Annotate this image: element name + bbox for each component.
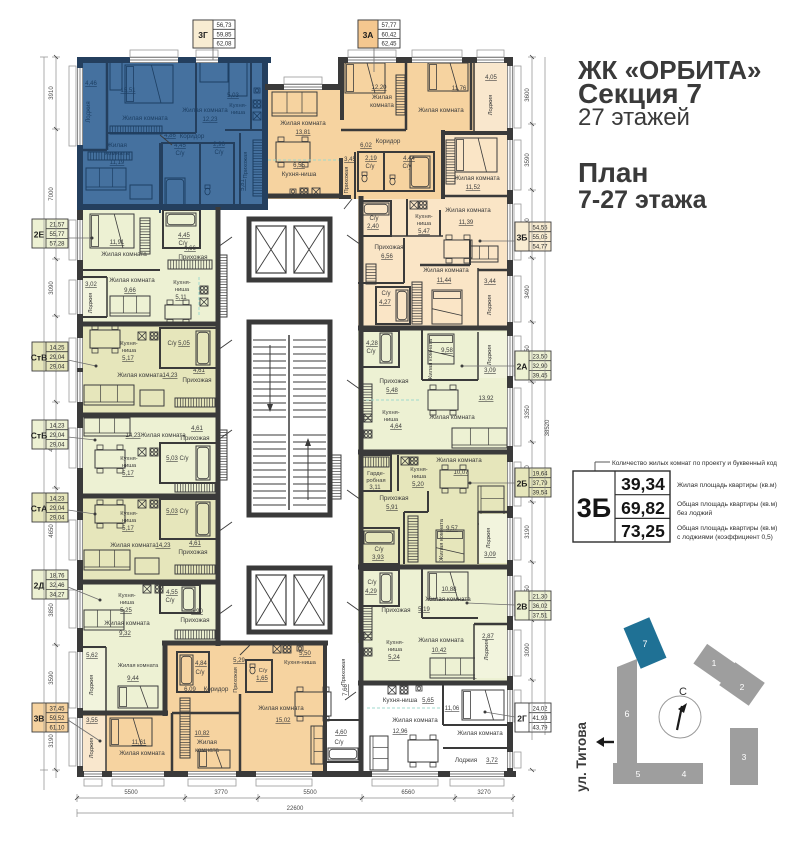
svg-text:робная: робная xyxy=(366,478,385,484)
svg-text:3,11: 3,11 xyxy=(369,485,381,491)
svg-text:Лоджия: Лоджия xyxy=(484,640,490,661)
svg-text:11,61: 11,61 xyxy=(132,740,147,746)
svg-text:4,66: 4,66 xyxy=(184,246,196,252)
svg-text:Жилая площадь квартиры (кв.м): Жилая площадь квартиры (кв.м) xyxy=(677,482,777,489)
svg-text:3Б: 3Б xyxy=(517,233,528,243)
svg-text:5,19: 5,19 xyxy=(418,607,430,613)
svg-text:Прихожая: Прихожая xyxy=(374,244,403,251)
svg-text:2Б: 2Б xyxy=(517,479,528,489)
svg-text:Жилая комната: Жилая комната xyxy=(182,107,228,114)
svg-text:2В: 2В xyxy=(517,602,528,612)
svg-text:Лоджия: Лоджия xyxy=(487,295,493,316)
svg-text:12,20: 12,20 xyxy=(371,85,387,91)
svg-text:11,44: 11,44 xyxy=(437,278,452,284)
svg-text:5,81: 5,81 xyxy=(240,179,246,191)
svg-text:3,72: 3,72 xyxy=(486,758,498,764)
svg-text:2,96: 2,96 xyxy=(213,142,225,148)
svg-text:3Б: 3Б xyxy=(577,493,611,523)
svg-text:5,47: 5,47 xyxy=(418,229,430,235)
svg-text:4,45: 4,45 xyxy=(174,143,186,149)
svg-text:14,23: 14,23 xyxy=(49,424,65,430)
svg-text:6560: 6560 xyxy=(401,790,415,796)
svg-text:С/у: С/у xyxy=(367,349,376,355)
svg-text:9,44: 9,44 xyxy=(127,676,139,682)
svg-text:37,79: 37,79 xyxy=(532,481,548,487)
svg-text:С: С xyxy=(679,686,687,698)
svg-text:5,50: 5,50 xyxy=(299,651,311,657)
svg-text:3,93: 3,93 xyxy=(372,555,384,561)
svg-text:Жилая комната: Жилая комната xyxy=(454,175,500,182)
svg-text:С/у: С/у xyxy=(215,150,224,156)
svg-text:3,44: 3,44 xyxy=(484,279,496,285)
svg-text:3: 3 xyxy=(742,752,747,762)
svg-text:Прихожая: Прихожая xyxy=(243,152,249,179)
svg-text:Лоджия: Лоджия xyxy=(455,757,477,764)
svg-text:3190: 3190 xyxy=(49,734,55,748)
svg-text:Жилая: Жилая xyxy=(372,94,392,101)
svg-text:29,04: 29,04 xyxy=(49,355,65,361)
svg-text:11,19: 11,19 xyxy=(110,160,125,166)
svg-text:59,85: 59,85 xyxy=(216,32,232,38)
svg-text:Жилая: Жилая xyxy=(197,739,217,746)
svg-text:15,51: 15,51 xyxy=(120,88,136,94)
svg-text:С/у: С/у xyxy=(382,291,391,297)
svg-text:4,46: 4,46 xyxy=(85,81,97,87)
svg-text:32,90: 32,90 xyxy=(532,364,548,370)
svg-text:Кухня-: Кухня- xyxy=(229,103,247,109)
svg-text:4,61: 4,61 xyxy=(193,368,205,374)
svg-text:4,60: 4,60 xyxy=(335,730,347,736)
svg-text:2,40: 2,40 xyxy=(367,224,379,230)
svg-text:3,90: 3,90 xyxy=(191,609,203,615)
svg-text:10,07: 10,07 xyxy=(453,470,469,476)
svg-text:5: 5 xyxy=(636,769,641,779)
svg-text:Кухня-: Кухня- xyxy=(120,511,138,517)
svg-text:37,45: 37,45 xyxy=(49,707,65,713)
svg-text:Жилая комната: Жилая комната xyxy=(445,207,491,214)
svg-text:3190: 3190 xyxy=(525,525,531,539)
svg-text:57,77: 57,77 xyxy=(381,23,397,29)
svg-text:10,88: 10,88 xyxy=(441,587,457,593)
svg-text:7000: 7000 xyxy=(49,187,55,201)
svg-text:4: 4 xyxy=(682,769,687,779)
svg-text:24,02: 24,02 xyxy=(532,707,548,713)
svg-text:3910: 3910 xyxy=(49,86,55,100)
svg-text:Лоджия: Лоджия xyxy=(88,293,94,314)
svg-text:Прихожая: Прихожая xyxy=(178,549,207,556)
svg-text:Жилая комната: Жилая комната xyxy=(423,267,469,274)
svg-text:11,91: 11,91 xyxy=(110,240,125,246)
svg-text:3590: 3590 xyxy=(49,671,55,685)
svg-text:29,04: 29,04 xyxy=(49,365,65,371)
svg-text:6,56: 6,56 xyxy=(381,254,393,260)
svg-text:4,27: 4,27 xyxy=(379,300,391,306)
svg-text:39,34: 39,34 xyxy=(621,474,665,494)
svg-text:5,17: 5,17 xyxy=(122,526,134,532)
svg-text:29,04: 29,04 xyxy=(49,443,65,449)
svg-text:62,45: 62,45 xyxy=(381,42,397,48)
svg-text:Гарде-: Гарде- xyxy=(367,471,385,477)
svg-text:Жилая комната: Жилая комната xyxy=(122,115,168,122)
svg-text:29,04: 29,04 xyxy=(49,433,65,439)
svg-text:Коридор: Коридор xyxy=(204,686,229,693)
svg-text:54,55: 54,55 xyxy=(532,226,548,232)
svg-text:ниша: ниша xyxy=(384,417,399,423)
svg-text:Жилая комната: Жилая комната xyxy=(140,432,186,439)
svg-text:без лоджий: без лоджий xyxy=(677,509,712,517)
svg-text:3,02: 3,02 xyxy=(85,282,97,288)
svg-text:5500: 5500 xyxy=(124,790,138,796)
svg-text:2,19: 2,19 xyxy=(365,156,377,162)
svg-text:Жилая комната: Жилая комната xyxy=(117,372,163,379)
svg-text:С/у: С/у xyxy=(180,509,189,515)
svg-text:5,48: 5,48 xyxy=(386,388,398,394)
svg-text:Жилая комната: Жилая комната xyxy=(109,277,155,284)
svg-text:с лоджиями (коэффициент 0,5): с лоджиями (коэффициент 0,5) xyxy=(677,534,773,541)
svg-text:3490: 3490 xyxy=(525,285,531,299)
svg-text:61,10: 61,10 xyxy=(49,726,65,732)
svg-text:ниша: ниша xyxy=(122,348,137,354)
svg-text:55,77: 55,77 xyxy=(49,232,65,238)
svg-text:Кухня-ниша: Кухня-ниша xyxy=(284,660,317,666)
svg-text:Жилая комната: Жилая комната xyxy=(110,542,156,549)
svg-text:Прихожая: Прихожая xyxy=(341,659,347,686)
svg-text:2Г: 2Г xyxy=(517,714,527,724)
svg-text:Общая площадь квартиры (кв.м): Общая площадь квартиры (кв.м) xyxy=(677,524,777,532)
svg-text:Прихожая: Прихожая xyxy=(233,667,239,693)
svg-text:10,42: 10,42 xyxy=(431,648,447,654)
svg-text:4,05: 4,05 xyxy=(485,75,497,81)
svg-text:С/у: С/у xyxy=(370,216,379,222)
svg-text:4,61: 4,61 xyxy=(189,541,201,547)
svg-text:С/у: С/у xyxy=(375,547,384,553)
svg-text:3090: 3090 xyxy=(525,643,531,657)
svg-text:21,30: 21,30 xyxy=(532,595,548,601)
svg-text:36,02: 36,02 xyxy=(532,604,548,610)
svg-text:Жилая комната: Жилая комната xyxy=(280,120,326,127)
svg-text:3,45: 3,45 xyxy=(344,157,356,163)
svg-text:11,06: 11,06 xyxy=(445,706,460,712)
svg-text:Лоджия: Лоджия xyxy=(488,95,494,116)
svg-text:Кухня-: Кухня- xyxy=(415,214,433,220)
svg-text:4,28: 4,28 xyxy=(366,341,378,347)
svg-text:60,42: 60,42 xyxy=(381,32,397,38)
svg-text:Лоджия: Лоджия xyxy=(487,345,493,366)
svg-text:2: 2 xyxy=(740,682,745,692)
svg-text:5,20: 5,20 xyxy=(412,482,424,488)
svg-text:5,03: 5,03 xyxy=(166,509,178,515)
svg-text:19,64: 19,64 xyxy=(532,472,548,478)
svg-text:Кухня-: Кухня- xyxy=(410,467,428,473)
svg-text:С/у: С/у xyxy=(166,598,175,604)
svg-text:3350: 3350 xyxy=(525,405,531,419)
svg-text:4,61: 4,61 xyxy=(191,426,203,432)
svg-text:15,02: 15,02 xyxy=(275,718,291,724)
svg-text:5,24: 5,24 xyxy=(388,655,400,661)
svg-text:9,58: 9,58 xyxy=(441,348,453,354)
svg-text:Лоджия: Лоджия xyxy=(89,675,95,696)
svg-text:ниша: ниша xyxy=(231,110,246,116)
svg-text:3090: 3090 xyxy=(49,281,55,295)
svg-text:39,45: 39,45 xyxy=(532,374,548,380)
svg-text:Жилая комната: Жилая комната xyxy=(428,338,434,381)
svg-text:2А: 2А xyxy=(517,362,528,372)
svg-text:План: План xyxy=(578,157,648,188)
svg-text:9,32: 9,32 xyxy=(119,631,131,637)
svg-text:Прихожая: Прихожая xyxy=(381,607,410,614)
svg-text:3850: 3850 xyxy=(49,603,55,617)
svg-text:комната: комната xyxy=(195,747,219,754)
svg-text:6,02: 6,02 xyxy=(360,143,372,149)
svg-text:Жилая комната: Жилая комната xyxy=(392,717,438,724)
svg-text:С/у: С/у xyxy=(259,668,268,674)
svg-text:4,29: 4,29 xyxy=(365,589,377,595)
svg-text:5,05: 5,05 xyxy=(178,341,190,347)
svg-text:СтВ: СтВ xyxy=(31,353,47,363)
svg-text:4,86: 4,86 xyxy=(164,133,176,139)
svg-text:Лоджия: Лоджия xyxy=(89,738,95,759)
svg-text:СтА: СтА xyxy=(31,504,47,514)
svg-text:С/у: С/у xyxy=(366,164,375,170)
svg-text:Жилая комната: Жилая комната xyxy=(104,620,150,627)
svg-text:Жилая комната: Жилая комната xyxy=(457,730,503,737)
svg-text:ниша: ниша xyxy=(175,287,190,293)
svg-text:55,05: 55,05 xyxy=(532,235,548,241)
svg-text:Коридор: Коридор xyxy=(180,133,205,140)
svg-text:ул. Титова: ул. Титова xyxy=(574,722,589,792)
svg-text:69,82: 69,82 xyxy=(621,498,665,518)
svg-text:3В: 3В xyxy=(34,714,45,724)
svg-text:комната: комната xyxy=(370,102,394,109)
svg-text:62,08: 62,08 xyxy=(216,42,232,48)
svg-text:С/у: С/у xyxy=(196,670,205,676)
svg-text:ниша: ниша xyxy=(417,221,432,227)
svg-text:С/у: С/у xyxy=(335,740,344,746)
svg-text:5,65: 5,65 xyxy=(422,698,434,704)
svg-text:10,82: 10,82 xyxy=(194,731,210,737)
svg-text:Общая площадь квартиры (кв.м): Общая площадь квартиры (кв.м) xyxy=(677,500,777,508)
svg-text:Кухня-: Кухня- xyxy=(120,456,138,462)
svg-text:3600: 3600 xyxy=(525,88,531,102)
svg-text:9,66: 9,66 xyxy=(124,288,136,294)
svg-text:4,64: 4,64 xyxy=(390,424,402,430)
svg-text:Прихожая: Прихожая xyxy=(180,435,209,442)
svg-text:5,03: 5,03 xyxy=(166,456,178,462)
svg-text:12,23: 12,23 xyxy=(202,117,218,123)
svg-text:27 этажей: 27 этажей xyxy=(578,104,690,131)
svg-text:Кухня-ниша: Кухня-ниша xyxy=(282,171,317,178)
svg-text:Жилая: Жилая xyxy=(107,142,127,149)
svg-text:4,84: 4,84 xyxy=(195,661,207,667)
svg-text:2Д: 2Д xyxy=(34,581,45,591)
svg-text:Кухня-: Кухня- xyxy=(382,410,400,416)
svg-text:6,55: 6,55 xyxy=(293,163,305,169)
svg-text:Жилая комната: Жилая комната xyxy=(418,107,464,114)
svg-text:14,25: 14,25 xyxy=(49,346,65,352)
svg-text:7: 7 xyxy=(642,639,647,649)
svg-text:комната: комната xyxy=(105,150,129,157)
svg-text:3270: 3270 xyxy=(477,790,491,796)
svg-text:ниша: ниша xyxy=(388,647,403,653)
svg-text:59,52: 59,52 xyxy=(49,716,65,722)
svg-text:7,66: 7,66 xyxy=(343,684,349,696)
svg-text:Прихожая: Прихожая xyxy=(182,377,211,384)
svg-text:Кухня-: Кухня- xyxy=(120,341,138,347)
svg-text:Жилая комната: Жилая комната xyxy=(425,596,471,603)
svg-text:Жилая комната: Жилая комната xyxy=(258,705,304,712)
svg-text:13,81: 13,81 xyxy=(295,130,311,136)
svg-text:Жилая комната: Жилая комната xyxy=(436,457,482,464)
svg-text:23,50: 23,50 xyxy=(532,355,548,361)
svg-text:3,09: 3,09 xyxy=(484,368,496,374)
svg-text:6: 6 xyxy=(624,709,629,719)
svg-text:1: 1 xyxy=(712,658,717,668)
svg-text:Прихожая: Прихожая xyxy=(180,617,209,624)
svg-text:С/у: С/у xyxy=(168,341,177,347)
svg-text:Прихожая: Прихожая xyxy=(344,167,350,194)
svg-text:22600: 22600 xyxy=(287,806,304,812)
svg-text:6,09: 6,09 xyxy=(184,687,196,693)
svg-text:57,28: 57,28 xyxy=(49,242,65,248)
svg-text:7-27 этажа: 7-27 этажа xyxy=(578,186,708,214)
svg-text:2Е: 2Е xyxy=(34,230,45,240)
svg-text:14,23: 14,23 xyxy=(162,373,178,379)
svg-text:4650: 4650 xyxy=(49,524,55,538)
svg-text:13,92: 13,92 xyxy=(478,396,494,402)
svg-text:Жилая комната: Жилая комната xyxy=(429,414,475,421)
svg-text:5,25: 5,25 xyxy=(120,608,132,614)
svg-text:4,44: 4,44 xyxy=(403,156,415,162)
svg-text:С/у: С/у xyxy=(368,580,377,586)
svg-text:37,51: 37,51 xyxy=(532,614,548,620)
svg-text:4,45: 4,45 xyxy=(178,233,190,239)
svg-text:ниша: ниша xyxy=(412,474,427,480)
svg-text:Прихожая: Прихожая xyxy=(379,495,408,502)
svg-text:11,39: 11,39 xyxy=(459,220,474,226)
svg-text:73,25: 73,25 xyxy=(621,521,665,541)
svg-text:14,23: 14,23 xyxy=(155,543,171,549)
svg-text:2,87: 2,87 xyxy=(482,634,494,640)
svg-text:5,17: 5,17 xyxy=(122,471,134,477)
svg-text:3,55: 3,55 xyxy=(86,718,98,724)
svg-text:4,55: 4,55 xyxy=(166,590,178,596)
svg-text:Прихожая: Прихожая xyxy=(379,378,408,385)
svg-text:9,57: 9,57 xyxy=(446,526,458,532)
svg-text:32,46: 32,46 xyxy=(49,583,65,589)
svg-text:Жилая комната: Жилая комната xyxy=(119,750,165,757)
svg-text:5,17: 5,17 xyxy=(122,356,134,362)
svg-text:11,76: 11,76 xyxy=(452,86,467,92)
svg-text:СтБ: СтБ xyxy=(31,431,47,441)
svg-text:3А: 3А xyxy=(363,30,374,40)
svg-text:Кухня-: Кухня- xyxy=(173,280,191,286)
svg-text:18,76: 18,76 xyxy=(49,574,65,580)
svg-text:Лоджия: Лоджия xyxy=(86,101,92,122)
svg-text:34,27: 34,27 xyxy=(49,593,65,599)
svg-text:5,03: 5,03 xyxy=(227,93,239,99)
svg-text:ниша: ниша xyxy=(120,600,135,606)
svg-text:3590: 3590 xyxy=(525,153,531,167)
svg-text:41,93: 41,93 xyxy=(532,716,548,722)
svg-text:14,23: 14,23 xyxy=(49,497,65,503)
svg-text:Лоджия: Лоджия xyxy=(486,528,492,549)
svg-text:Коридор: Коридор xyxy=(376,138,401,145)
svg-text:С/у: С/у xyxy=(176,151,185,157)
svg-text:12,96: 12,96 xyxy=(392,729,408,735)
svg-text:29,04: 29,04 xyxy=(49,506,65,512)
svg-text:54,77: 54,77 xyxy=(532,245,548,251)
svg-text:21,57: 21,57 xyxy=(49,223,65,229)
svg-text:1,65: 1,65 xyxy=(256,676,268,682)
svg-text:Жилая комната: Жилая комната xyxy=(118,663,159,669)
svg-text:3770: 3770 xyxy=(214,790,228,796)
svg-text:Кухня-ниша: Кухня-ниша xyxy=(383,697,418,704)
svg-text:5500: 5500 xyxy=(303,790,317,796)
svg-text:56,73: 56,73 xyxy=(216,23,232,29)
svg-text:39,54: 39,54 xyxy=(532,491,548,497)
svg-text:С/у: С/у xyxy=(180,456,189,462)
svg-text:Кухня-: Кухня- xyxy=(118,593,136,599)
svg-text:3,09: 3,09 xyxy=(484,552,496,558)
svg-text:43,79: 43,79 xyxy=(532,726,548,732)
svg-text:Количество жилых комнат по про: Количество жилых комнат по проекту и бук… xyxy=(612,459,777,467)
svg-text:29,04: 29,04 xyxy=(49,516,65,522)
svg-text:3Г: 3Г xyxy=(198,30,208,40)
svg-text:Кухня-: Кухня- xyxy=(386,640,404,646)
svg-text:Жилая комната: Жилая комната xyxy=(439,518,445,561)
svg-text:38520: 38520 xyxy=(545,419,551,436)
svg-text:5,62: 5,62 xyxy=(86,653,98,659)
svg-text:11,52: 11,52 xyxy=(466,185,481,191)
svg-text:5,91: 5,91 xyxy=(386,505,398,511)
svg-text:5,29: 5,29 xyxy=(233,658,245,664)
svg-text:Жилая комната: Жилая комната xyxy=(418,637,464,644)
